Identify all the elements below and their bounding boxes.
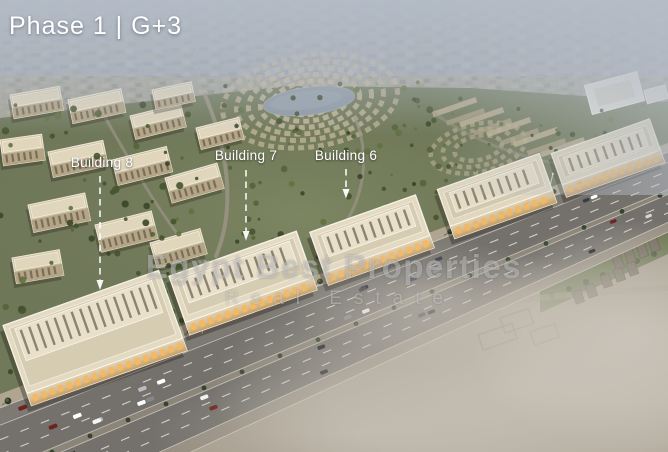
building-6-label: Building 6 <box>286 148 406 163</box>
aerial-masterplan-image: Phase 1 | G+3 Building 8 Building 7 Buil… <box>0 0 668 452</box>
phase-title: Phase 1 | G+3 <box>9 12 182 41</box>
aerial-render-scene <box>0 0 668 452</box>
building-8-label: Building 8 <box>42 155 162 170</box>
